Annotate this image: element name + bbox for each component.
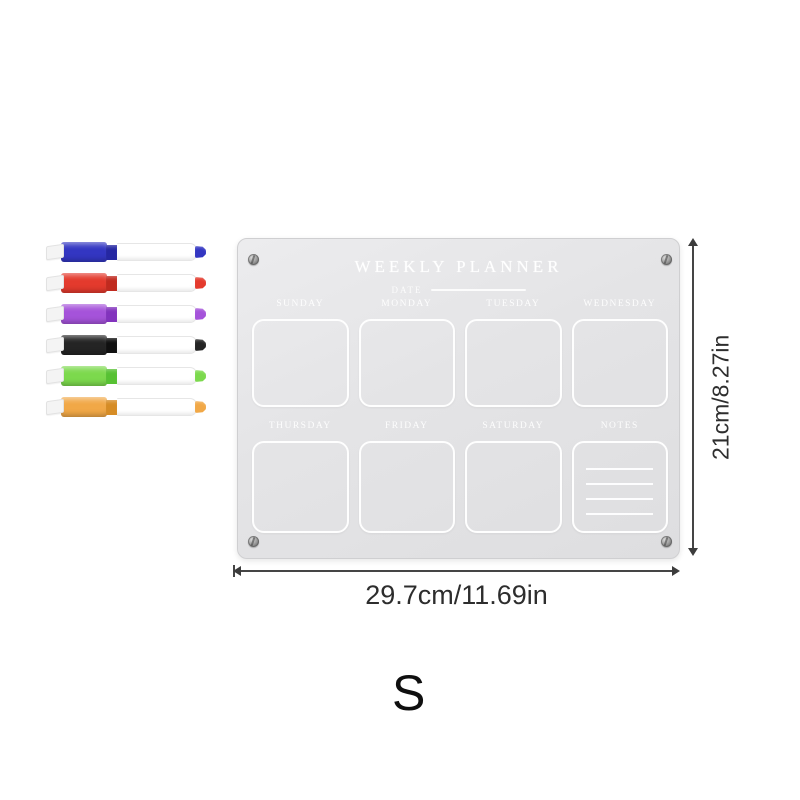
marker-body — [117, 336, 197, 354]
watermark-letter-s: S — [392, 664, 425, 722]
marker-cap — [61, 304, 107, 324]
marker-end-plug — [195, 401, 206, 413]
marker-body — [117, 367, 197, 385]
day-label: TUESDAY — [486, 299, 540, 311]
marker-end-plug — [195, 246, 206, 258]
marker-set — [46, 241, 208, 418]
notes-box — [572, 441, 669, 533]
marker-collar — [106, 307, 117, 322]
dry-erase-marker-purple — [46, 303, 208, 325]
day-cell-sunday: SUNDAY — [252, 299, 349, 407]
day-writing-box — [252, 441, 349, 533]
marker-eraser-tip — [46, 275, 64, 292]
arrow-down-icon — [688, 548, 698, 556]
marker-collar — [106, 276, 117, 291]
marker-cap — [61, 397, 107, 417]
marker-eraser-tip — [46, 337, 64, 354]
dry-erase-marker-black — [46, 334, 208, 356]
screw-bottom-right-icon — [661, 536, 672, 547]
marker-cap — [61, 335, 107, 355]
date-label: DATE — [392, 285, 423, 295]
day-writing-box — [252, 319, 349, 407]
day-cell-tuesday: TUESDAY — [465, 299, 562, 407]
arrow-right-icon — [672, 566, 680, 576]
arrow-up-icon — [688, 238, 698, 246]
planner-row-1: SUNDAY MONDAY TUESDAY WEDNESDAY — [252, 299, 668, 407]
marker-body — [117, 398, 197, 416]
marker-end-plug — [195, 308, 206, 320]
day-writing-box — [465, 319, 562, 407]
day-cell-thursday: THURSDAY — [252, 421, 349, 533]
day-label: SATURDAY — [482, 421, 544, 433]
width-dimension-label: 29.7cm/11.69in — [233, 580, 680, 611]
marker-eraser-tip — [46, 306, 64, 323]
day-label: FRIDAY — [385, 421, 429, 433]
marker-end-plug — [195, 277, 206, 289]
height-dimension-label: 21cm/8.27in — [698, 242, 744, 552]
acrylic-planner-board: WEEKLY PLANNER DATE SUNDAY MONDAY TUESDA… — [237, 238, 680, 559]
marker-cap — [61, 273, 107, 293]
arrow-left-icon — [233, 566, 241, 576]
date-underline — [431, 289, 526, 291]
notes-cell: NOTES — [572, 421, 669, 533]
day-cell-monday: MONDAY — [359, 299, 456, 407]
day-cell-wednesday: WEDNESDAY — [572, 299, 669, 407]
height-dimension-line — [692, 242, 694, 552]
marker-eraser-tip — [46, 244, 64, 261]
date-row: DATE — [238, 285, 679, 295]
dry-erase-marker-blue — [46, 241, 208, 263]
marker-end-plug — [195, 370, 206, 382]
marker-body — [117, 305, 197, 323]
day-label: WEDNESDAY — [583, 299, 656, 311]
day-label: SUNDAY — [276, 299, 324, 311]
marker-cap — [61, 366, 107, 386]
marker-collar — [106, 369, 117, 384]
marker-collar — [106, 245, 117, 260]
day-writing-box — [572, 319, 669, 407]
day-label: THURSDAY — [269, 421, 332, 433]
day-cell-saturday: SATURDAY — [465, 421, 562, 533]
board-title: WEEKLY PLANNER — [238, 257, 679, 277]
notes-label: NOTES — [601, 421, 639, 433]
day-writing-box — [465, 441, 562, 533]
marker-body — [117, 274, 197, 292]
marker-body — [117, 243, 197, 261]
marker-end-plug — [195, 339, 206, 351]
day-writing-box — [359, 319, 456, 407]
day-writing-box — [359, 441, 456, 533]
marker-collar — [106, 338, 117, 353]
day-cell-friday: FRIDAY — [359, 421, 456, 533]
marker-cap — [61, 242, 107, 262]
dry-erase-marker-orange — [46, 396, 208, 418]
day-label: MONDAY — [381, 299, 432, 311]
marker-collar — [106, 400, 117, 415]
notes-ruled-lines — [586, 455, 653, 527]
marker-eraser-tip — [46, 368, 64, 385]
dry-erase-marker-green — [46, 365, 208, 387]
screw-bottom-left-icon — [248, 536, 259, 547]
dry-erase-marker-red — [46, 272, 208, 294]
planner-row-2: THURSDAY FRIDAY SATURDAY NOTES — [252, 421, 668, 533]
marker-eraser-tip — [46, 399, 64, 416]
width-dimension-line — [236, 570, 676, 572]
